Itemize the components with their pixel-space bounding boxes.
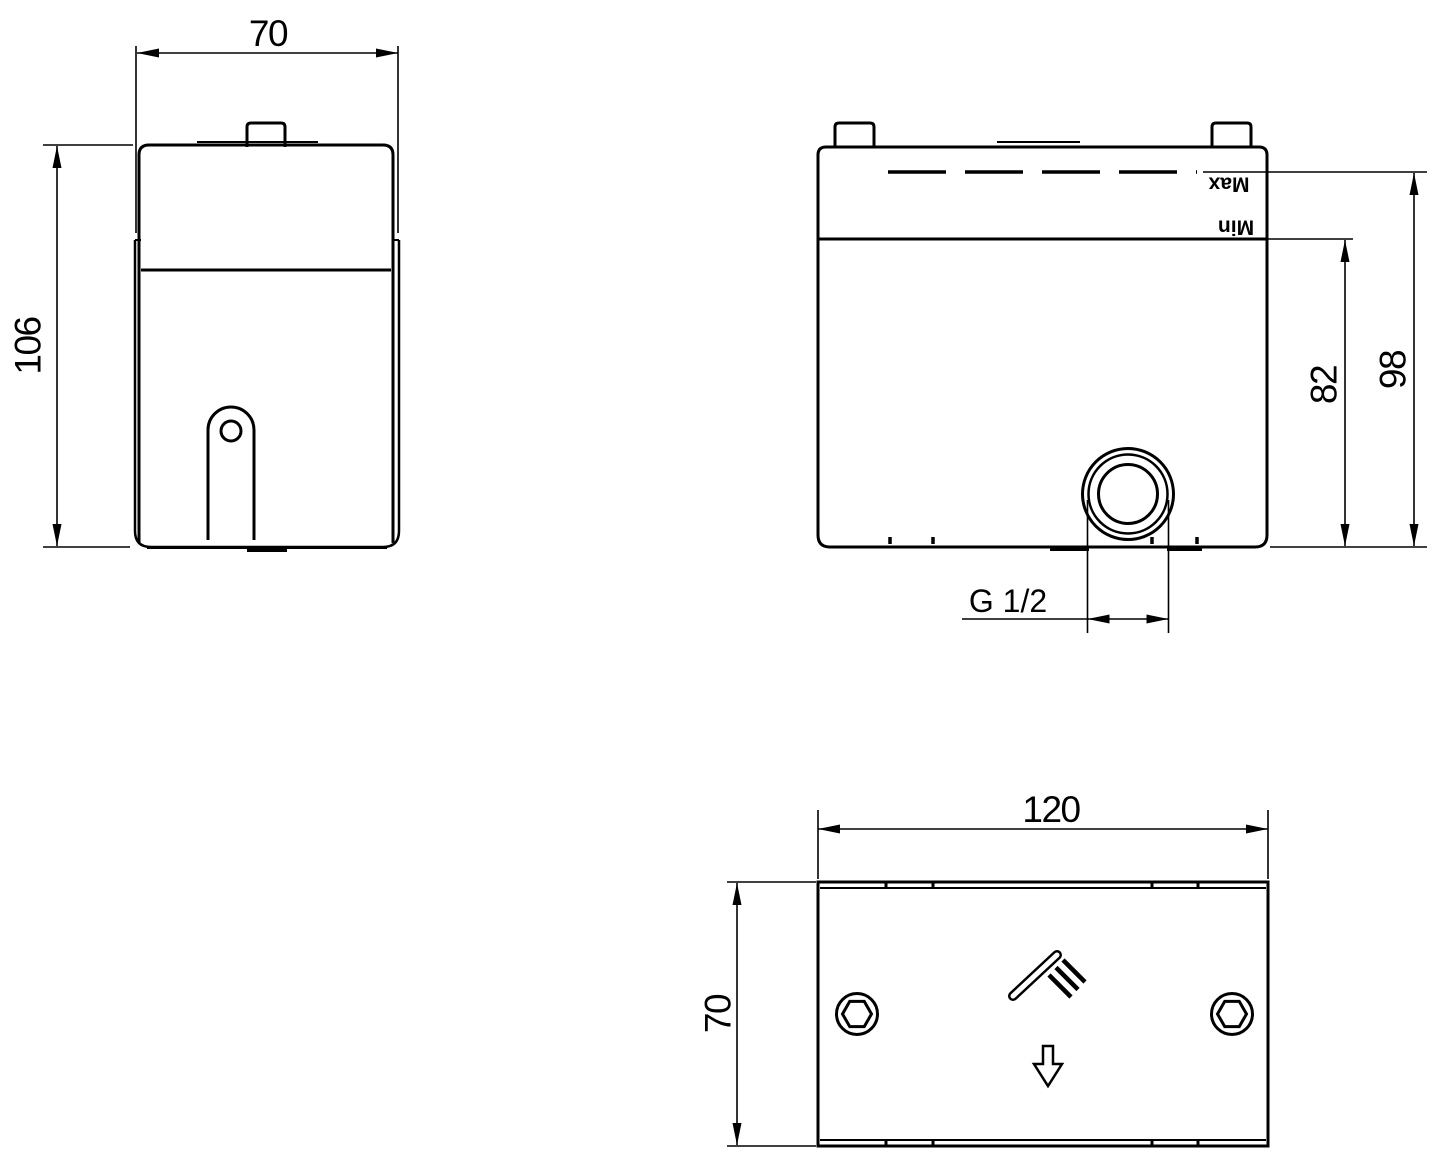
keyhole-slot bbox=[208, 407, 254, 540]
arrowhead-down bbox=[53, 524, 62, 546]
dim-depth-82: 82 bbox=[1267, 239, 1427, 547]
arrowhead-right bbox=[1147, 615, 1169, 624]
supply-connection bbox=[1083, 449, 1174, 540]
dim-text-82: 82 bbox=[1304, 366, 1345, 404]
arrowhead-up bbox=[53, 146, 62, 168]
arrowhead-left bbox=[1088, 615, 1110, 624]
arrowhead-up bbox=[733, 883, 742, 905]
arrowhead-right bbox=[1246, 825, 1268, 834]
arrowhead-up bbox=[1341, 240, 1350, 262]
arrowhead-up bbox=[1410, 173, 1419, 195]
arrowhead-down bbox=[1410, 524, 1419, 546]
hand-shower-icon bbox=[1013, 955, 1085, 997]
valve-body-outline bbox=[139, 145, 393, 543]
dim-width-120: 120 bbox=[818, 789, 1268, 879]
mounting-tab-left bbox=[835, 123, 874, 147]
valve-box-outline bbox=[818, 147, 1267, 547]
slot-outline bbox=[208, 407, 254, 540]
flow-direction-arrow-icon bbox=[1034, 1046, 1062, 1086]
arrowhead-down bbox=[733, 1123, 742, 1145]
dim-depth-70: 70 bbox=[698, 882, 817, 1146]
connection-outer-circle bbox=[1083, 449, 1174, 540]
flange-ticks bbox=[886, 883, 1198, 1145]
arrowhead-left bbox=[137, 49, 159, 58]
max-label: Max bbox=[1208, 173, 1249, 196]
technical-drawing-page: 70 106 Ma bbox=[0, 0, 1445, 1166]
hex-socket-icon bbox=[1218, 1001, 1247, 1026]
dim-text-width-70: 70 bbox=[249, 13, 288, 54]
hex-socket-icon bbox=[843, 1001, 872, 1026]
arrowhead-left bbox=[818, 825, 840, 834]
hex-screw-left bbox=[837, 994, 878, 1035]
mounting-tab bbox=[247, 123, 285, 147]
slot-hole bbox=[221, 421, 241, 441]
side-view: 70 106 bbox=[8, 13, 400, 550]
mounting-tab-right bbox=[1212, 123, 1251, 147]
dim-text-98: 98 bbox=[1373, 351, 1414, 389]
arrowhead-right bbox=[376, 49, 398, 58]
min-label: Min bbox=[1218, 216, 1254, 239]
dim-height-106: 106 bbox=[8, 145, 134, 547]
hex-screw-right bbox=[1212, 994, 1253, 1035]
arrowhead-down bbox=[1341, 524, 1350, 546]
technical-drawing-canvas: 70 106 Ma bbox=[0, 0, 1445, 1166]
dim-text-depth-70: 70 bbox=[698, 994, 739, 1033]
dim-text-120: 120 bbox=[1022, 789, 1080, 830]
front-view: Max Min G 1/2 bbox=[818, 123, 1427, 633]
outer-shell bbox=[135, 240, 399, 547]
cover-plate-outline bbox=[818, 882, 1268, 1146]
bottom-view: 120 70 bbox=[698, 789, 1269, 1146]
flange-ticks bbox=[890, 537, 1197, 544]
thread-size-text: G 1/2 bbox=[969, 583, 1047, 619]
dim-text-height-106: 106 bbox=[8, 317, 49, 374]
